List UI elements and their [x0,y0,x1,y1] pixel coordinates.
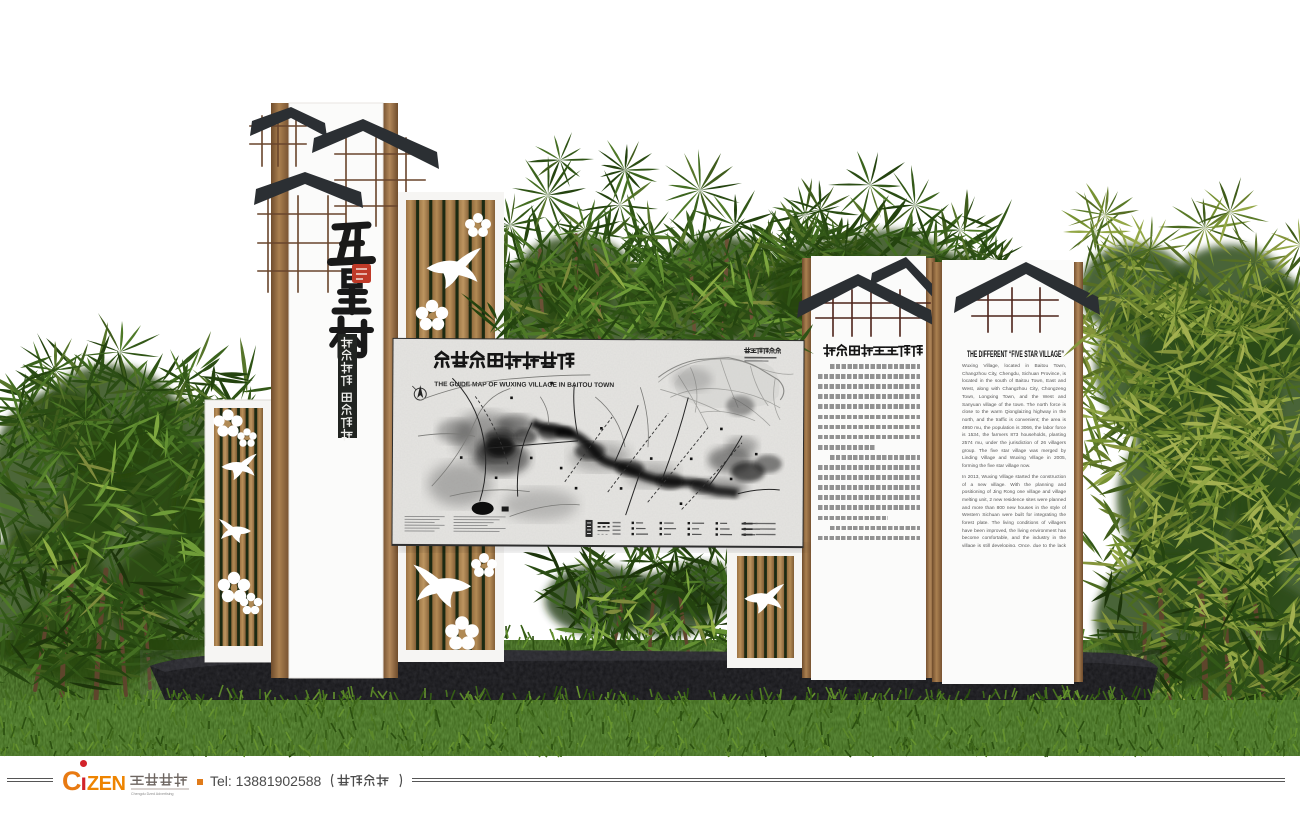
svg-text:THE DIFFERENT “FIVE STAR VILLA: THE DIFFERENT “FIVE STAR VILLAGE” [967,349,1064,360]
svg-text:Chengdu Dzed Advertising: Chengdu Dzed Advertising [131,792,174,796]
